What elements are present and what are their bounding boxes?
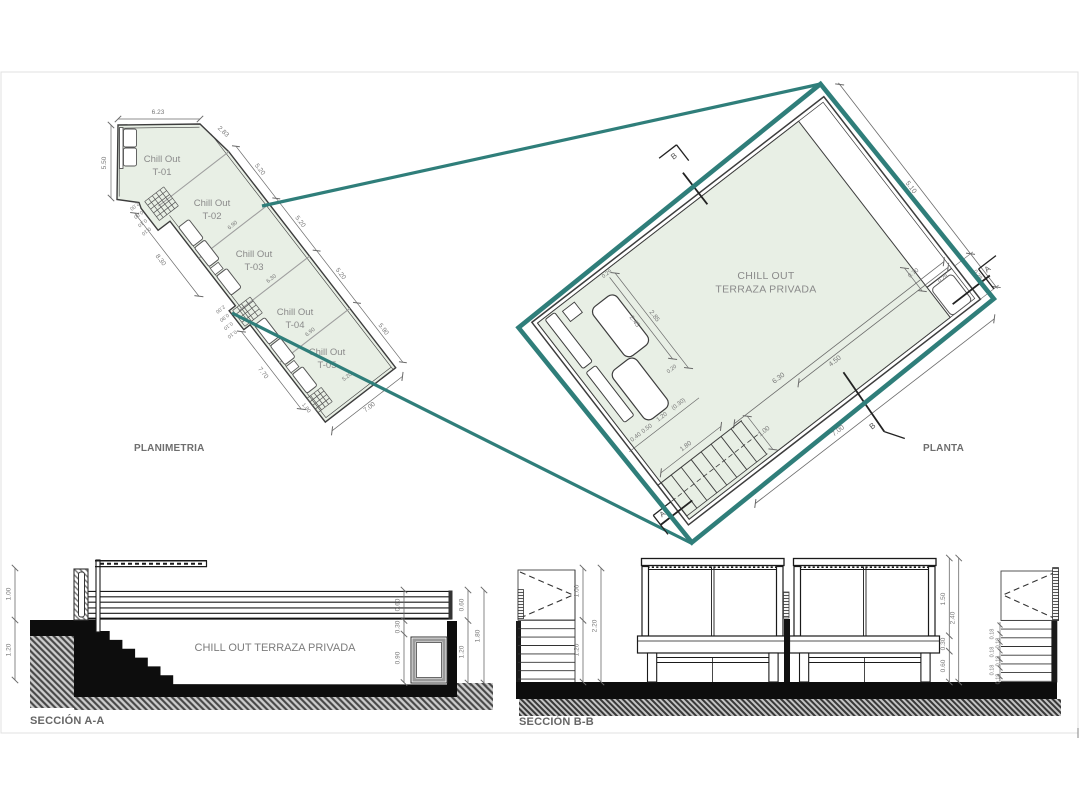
svg-text:Chill Out: Chill Out xyxy=(194,198,231,209)
svg-text:2.20: 2.20 xyxy=(592,619,599,632)
svg-text:CHILL OUT TERRAZA PRIVADA: CHILL OUT TERRAZA PRIVADA xyxy=(195,642,357,654)
svg-text:1.50: 1.50 xyxy=(940,592,947,605)
svg-text:0.18: 0.18 xyxy=(996,656,1002,667)
svg-text:0.90: 0.90 xyxy=(395,651,402,664)
svg-text:T-04: T-04 xyxy=(285,320,304,331)
svg-text:5.50: 5.50 xyxy=(101,156,108,169)
svg-text:PLANIMETRIA: PLANIMETRIA xyxy=(134,443,205,454)
svg-text:0.60: 0.60 xyxy=(459,598,466,611)
svg-text:0.60: 0.60 xyxy=(940,659,947,672)
svg-text:T-01: T-01 xyxy=(152,167,171,178)
svg-text:SECCIÓN B-B: SECCIÓN B-B xyxy=(519,715,594,728)
svg-text:0.30: 0.30 xyxy=(940,637,947,650)
svg-text:Chill Out: Chill Out xyxy=(144,154,181,165)
svg-text:T-03: T-03 xyxy=(244,262,263,273)
svg-text:TERRAZA PRIVADA: TERRAZA PRIVADA xyxy=(715,284,816,296)
svg-text:1.00: 1.00 xyxy=(574,584,581,597)
svg-text:1.20: 1.20 xyxy=(6,643,13,656)
svg-text:CHILL OUT: CHILL OUT xyxy=(737,270,794,282)
svg-text:1.00: 1.00 xyxy=(6,587,13,600)
svg-text:Chill Out: Chill Out xyxy=(277,307,314,318)
svg-text:2.40: 2.40 xyxy=(949,611,956,624)
svg-text:0.18: 0.18 xyxy=(996,638,1002,649)
svg-text:T-02: T-02 xyxy=(202,211,221,222)
svg-text:Chill Out: Chill Out xyxy=(236,249,273,260)
svg-text:PLANTA: PLANTA xyxy=(923,443,964,454)
svg-text:SECCIÓN A-A: SECCIÓN A-A xyxy=(30,714,105,727)
svg-text:1.20: 1.20 xyxy=(459,645,466,658)
svg-text:6.23: 6.23 xyxy=(152,109,165,116)
svg-text:1.80: 1.80 xyxy=(475,629,482,642)
svg-text:0.30: 0.30 xyxy=(395,620,402,633)
svg-text:0.18: 0.18 xyxy=(996,674,1002,685)
svg-text:1.20: 1.20 xyxy=(574,643,581,656)
svg-text:0.60: 0.60 xyxy=(395,598,402,611)
